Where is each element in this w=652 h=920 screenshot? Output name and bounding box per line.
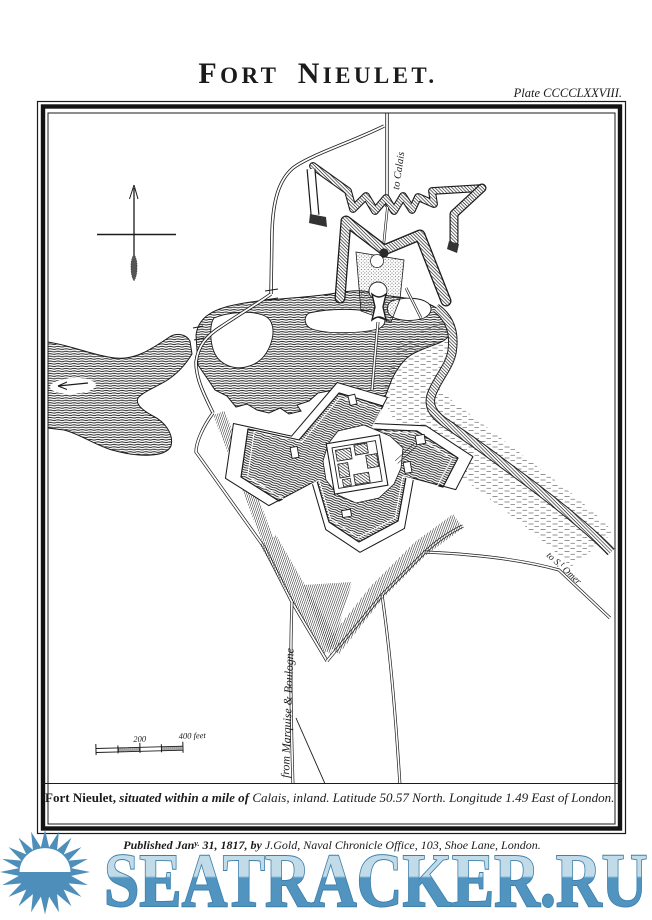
svg-text:Plate CCCCLXXVIII.: Plate CCCCLXXVIII. — [513, 86, 622, 100]
svg-text:400 feet: 400 feet — [179, 730, 207, 741]
svg-text:200: 200 — [133, 734, 147, 744]
svg-text:Fort Nieulet, situated within: Fort Nieulet, situated within a mile of … — [45, 790, 614, 805]
svg-text:Published Jany. 31, 1817, by J: Published Jany. 31, 1817, by J.Gold, Nav… — [123, 838, 540, 852]
